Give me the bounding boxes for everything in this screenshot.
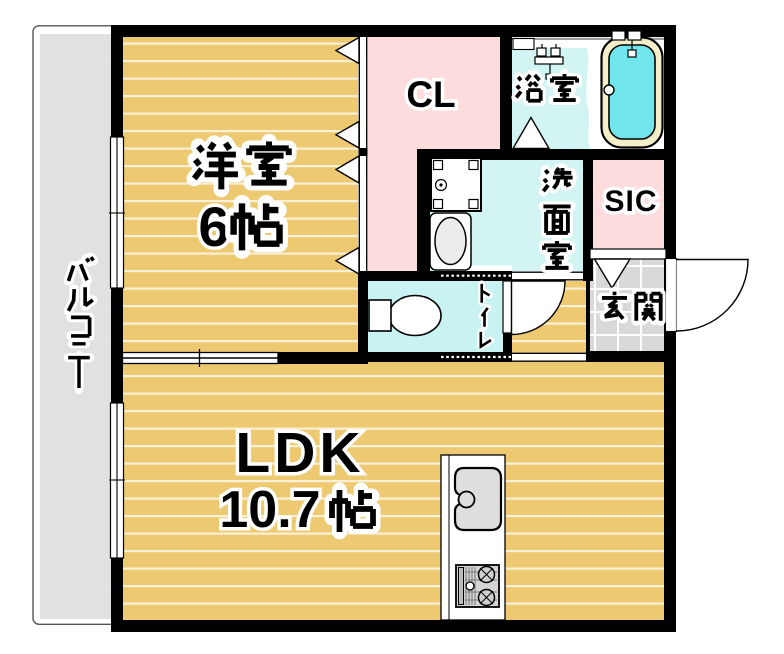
svg-text:10.7: 10.7 bbox=[219, 481, 320, 539]
svg-text:SIC: SIC bbox=[604, 185, 657, 218]
svg-text:LDK: LDK bbox=[235, 421, 364, 485]
svg-text:CL: CL bbox=[406, 74, 455, 115]
svg-text:6: 6 bbox=[198, 195, 229, 258]
